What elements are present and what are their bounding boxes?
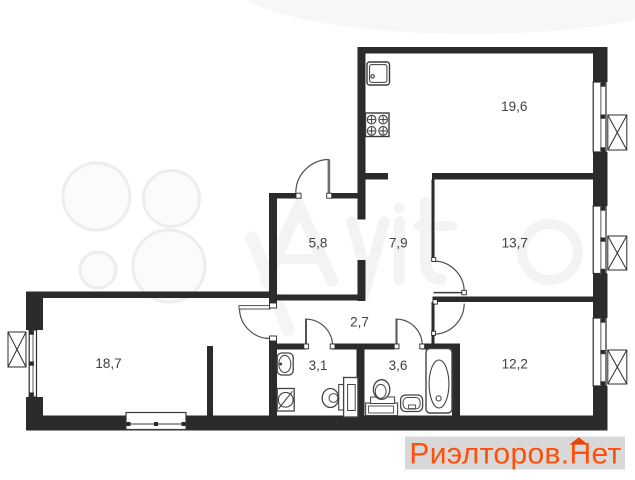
- svg-text:Риэлторов.Нет: Риэлторов.Нет: [409, 438, 621, 471]
- svg-text:3,1: 3,1: [309, 358, 328, 373]
- svg-text:2,7: 2,7: [350, 315, 369, 330]
- svg-text:13,7: 13,7: [502, 236, 528, 251]
- svg-text:19,6: 19,6: [501, 99, 527, 114]
- svg-text:3,6: 3,6: [389, 358, 408, 373]
- svg-text:7,9: 7,9: [389, 236, 408, 251]
- svg-text:12,2: 12,2: [502, 357, 528, 372]
- svg-text:5,8: 5,8: [309, 236, 328, 251]
- svg-text:18,7: 18,7: [95, 356, 121, 371]
